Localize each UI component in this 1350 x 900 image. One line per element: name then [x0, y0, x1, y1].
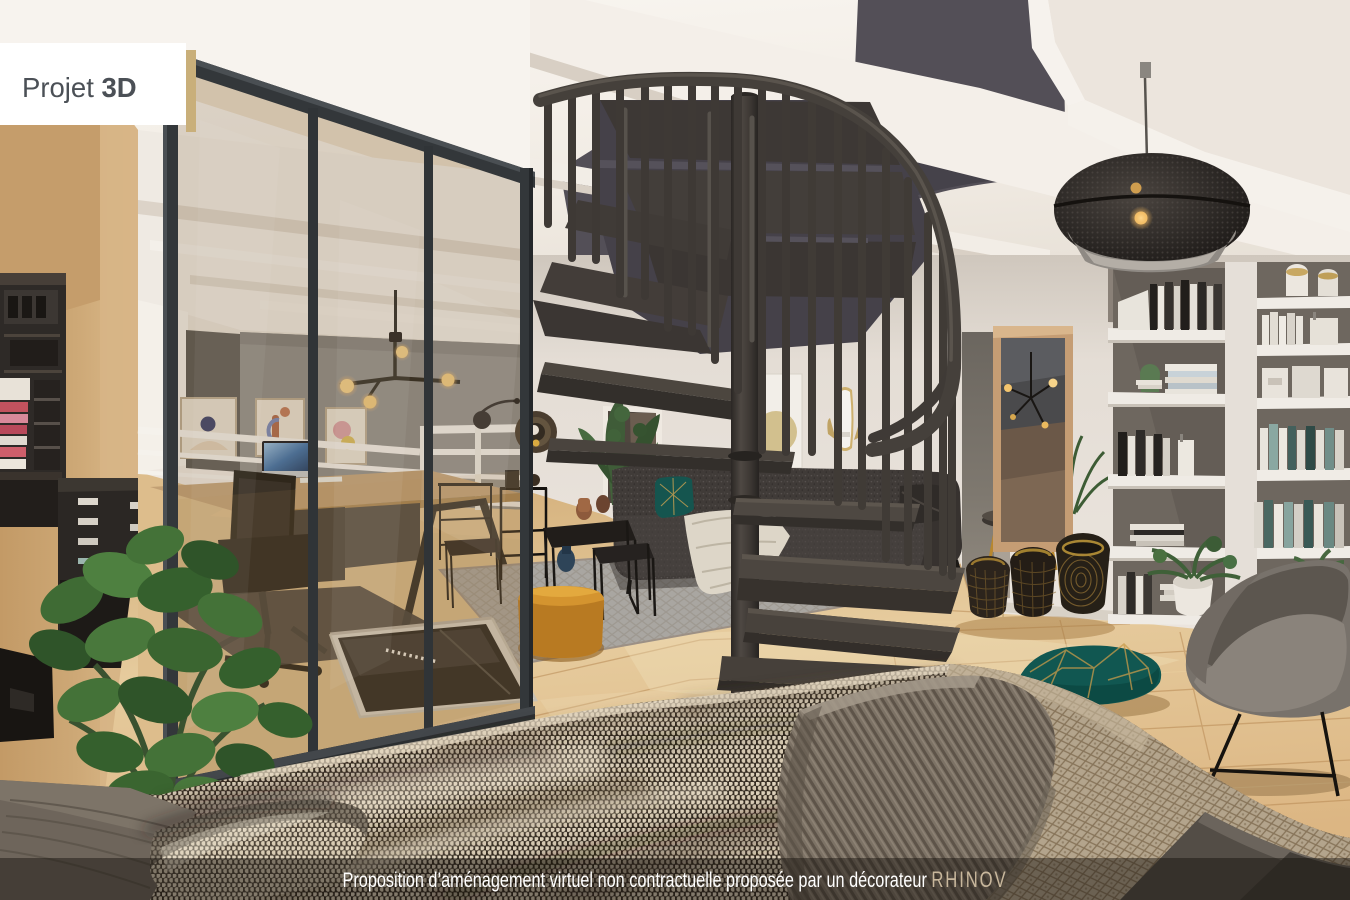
- svg-text:Projet 3D: Projet 3D: [22, 72, 137, 103]
- svg-text:Proposition d’aménagement virt: Proposition d’aménagement virtuel non co…: [343, 867, 1008, 892]
